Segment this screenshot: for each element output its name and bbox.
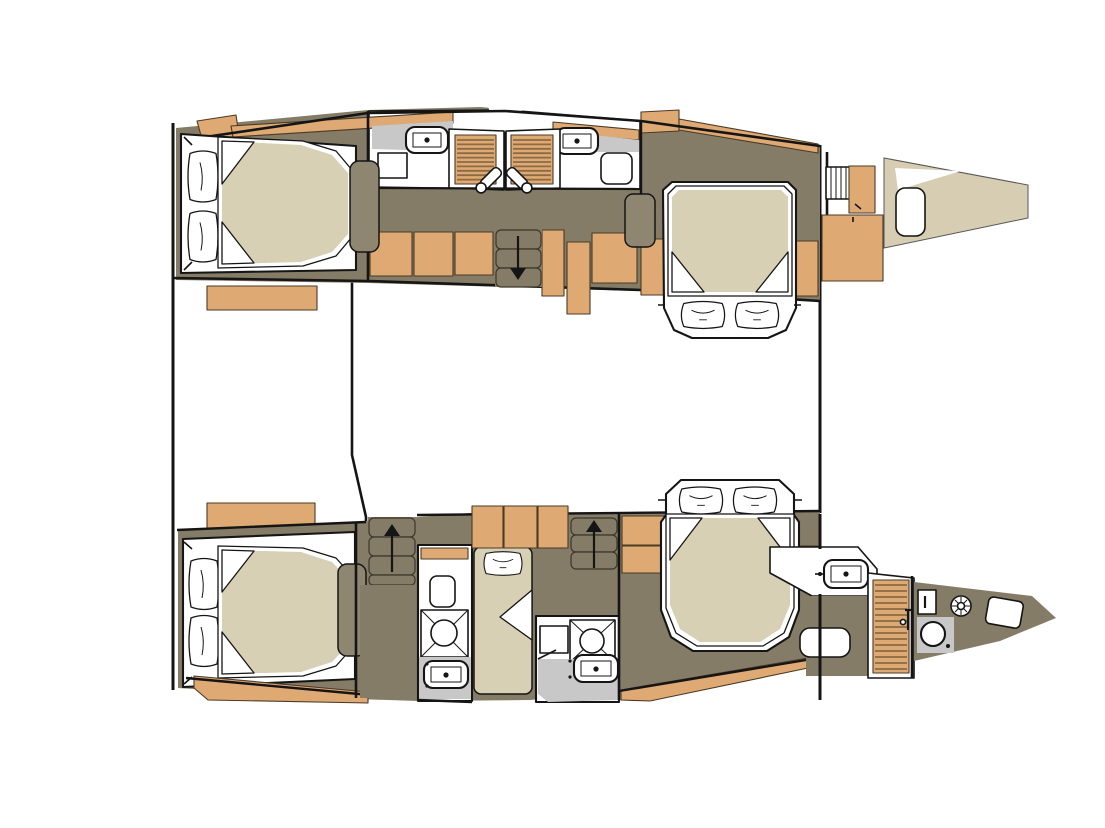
sink-icon (406, 127, 455, 153)
stairs-up-fwd (570, 517, 618, 579)
pillow-icon (188, 151, 218, 202)
pillow-icon (188, 211, 218, 262)
cabinet (455, 232, 493, 275)
locker (849, 166, 875, 213)
passage (360, 585, 418, 698)
cabinet (504, 506, 537, 548)
shower-tray-icon (421, 610, 468, 657)
cabin-aft-stbd (183, 532, 355, 687)
stairs-up-aft (368, 517, 416, 585)
sink-icon (424, 661, 468, 688)
cabinet (542, 230, 564, 296)
pillow-icon (681, 302, 724, 329)
head-aft-stbd (418, 545, 472, 702)
pillow-icon (189, 616, 219, 667)
pillow-icon (679, 487, 722, 514)
foredeck-curve (856, 252, 916, 567)
pillow-icon (189, 559, 219, 610)
locker (822, 215, 883, 281)
cabinet (414, 232, 453, 276)
deck-hatch-icon (985, 596, 1024, 629)
cabinet (538, 506, 568, 548)
cabinet (472, 506, 503, 548)
stairs-down (495, 222, 542, 287)
cabinet (567, 242, 590, 314)
cabinet (918, 590, 936, 614)
cabin-doorway (625, 194, 655, 247)
head-bow-stbd (770, 547, 1056, 678)
toilet-icon (430, 576, 455, 607)
cabinet (378, 153, 407, 178)
aft-deck-stbd (24, 505, 170, 692)
pillow-icon (735, 302, 778, 329)
cabin-aft-port (181, 134, 356, 273)
louvered-locker (868, 573, 914, 678)
bulkhead-vee (488, 105, 523, 132)
single-berth (474, 547, 532, 694)
floor-plan-canvas (0, 0, 1105, 828)
toilet-icon (917, 617, 954, 653)
cabinet (540, 626, 568, 653)
cockpit-locker-port (207, 286, 317, 310)
pillow-icon (733, 487, 776, 514)
port-bow (822, 152, 1028, 281)
shower-drain-icon (951, 596, 971, 616)
seat (601, 153, 632, 184)
cabin-doorway (350, 161, 379, 252)
cabinet (796, 241, 818, 296)
deck-hatch-icon (896, 188, 925, 236)
catamaran-floor-plan (0, 0, 1105, 828)
sink-icon (568, 655, 618, 682)
step-seat (800, 628, 850, 657)
aft-deck-port (24, 117, 170, 318)
pillow-icon (484, 552, 522, 576)
